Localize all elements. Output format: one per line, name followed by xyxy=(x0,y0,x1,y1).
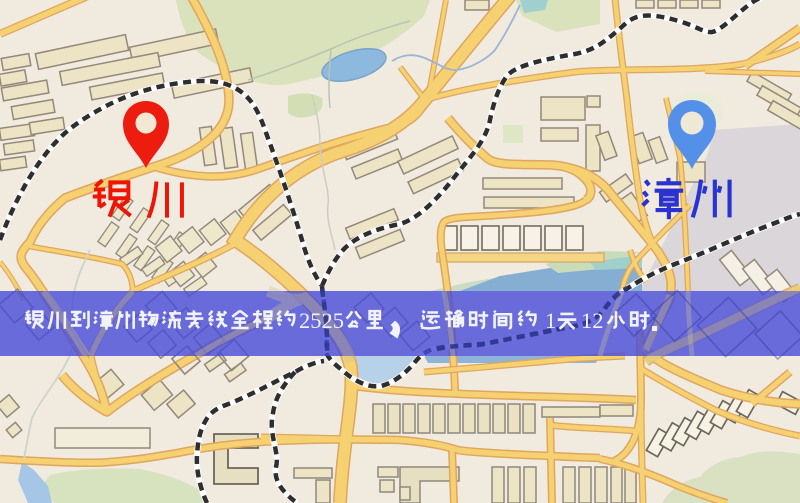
svg-text:12: 12 xyxy=(581,308,604,333)
svg-text:2525: 2525 xyxy=(299,308,344,333)
svg-text:1: 1 xyxy=(545,308,556,333)
